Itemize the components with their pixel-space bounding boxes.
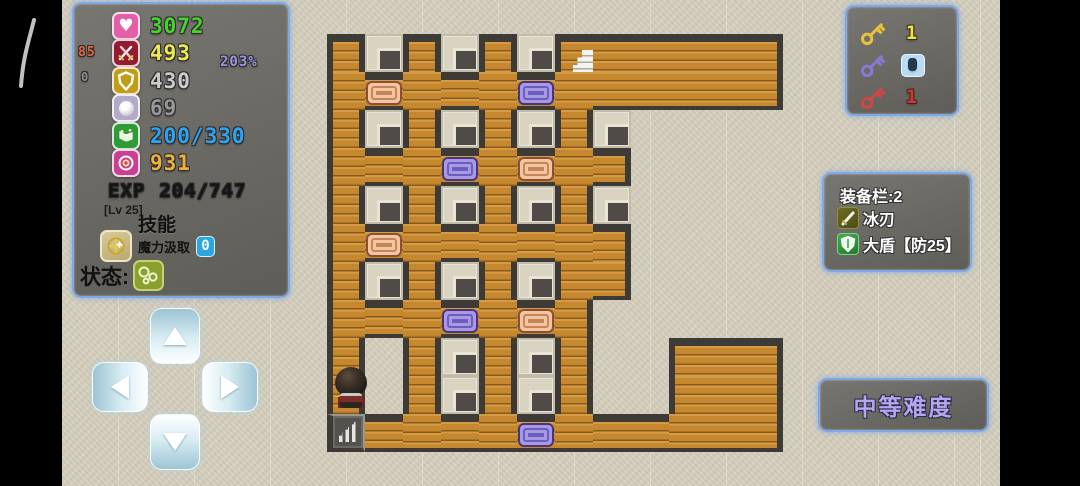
floor-tile [403,34,441,72]
wall-pillar [517,376,555,414]
wall-pillar [517,34,555,72]
wall-pillar [441,186,479,224]
left-arrow-icon [111,375,129,399]
red-key-count: 1 [901,86,923,108]
floor-tile [479,262,517,300]
equipment-item-label: 冰刃 [863,206,895,230]
dpad-down-button[interactable] [150,414,200,470]
floor-tile [441,72,479,110]
equipment-item: 大盾【防25】 [837,232,961,256]
skill-row: 魔力汲取 0 [100,230,215,262]
floor-tile [593,262,631,300]
floor-tile [365,414,403,452]
exp-line: EXP204/747 [108,180,246,202]
floor-tile [669,72,707,110]
floor-tile [707,338,745,376]
wall-pillar [441,110,479,148]
floor-tile [631,414,669,452]
purple-door[interactable] [517,414,555,452]
status-effect-icon [133,260,164,291]
floor-tile [327,224,365,262]
floor-tile [479,148,517,186]
floor-tile [707,376,745,414]
stat-row-defense: 430 [112,67,191,95]
gem-value: 69 [150,98,177,119]
left-bezel [0,0,62,486]
wall-pillar [365,110,403,148]
floor-tile [555,110,593,148]
floor-tile [745,338,783,376]
floor-tile [403,224,441,262]
floor-tile [403,338,441,376]
shield-icon [112,67,140,95]
floor-tile [555,224,593,262]
floor-tile [593,224,631,262]
equipment-item: 冰刃 [837,206,895,230]
heart-icon: ♥ [112,12,140,40]
floor-tile [479,376,517,414]
equipment-item-label: 大盾【防25】 [863,232,961,256]
key-row: 1 [859,82,923,112]
red-key-icon [859,83,887,111]
player-sprite[interactable] [334,367,368,413]
exp-value: 204/747 [159,180,246,202]
player-tile[interactable] [327,376,365,414]
floor-tile [707,34,745,72]
coin-icon [112,149,140,177]
mana-value: 200/330 [150,126,246,147]
defense-aux-value: 0 [81,70,89,84]
equipment-panel: 装备栏:2 冰刃 大盾【防25】 [822,172,972,272]
mana-drain-skill-icon[interactable] [100,230,132,262]
big-shield-icon [837,233,859,255]
bezel-curve-mark [0,0,62,486]
floor-tile [327,262,365,300]
floor-tile [555,300,593,338]
floor-tile [403,262,441,300]
orange-door[interactable] [365,224,403,262]
yellow-key-count: 1 [901,22,923,44]
floor-tile [707,414,745,452]
skill-count-badge: 0 [196,236,215,257]
floor-tile [555,414,593,452]
right-arrow-icon [221,375,239,399]
purple-door[interactable] [441,300,479,338]
floor-tile [555,262,593,300]
floor-tile [403,110,441,148]
wall-pillar [517,262,555,300]
purple-door[interactable] [517,72,555,110]
stat-row-gem: 69 [112,94,177,122]
dpad-up-button[interactable] [150,308,200,364]
floor-tile [555,148,593,186]
orange-door[interactable] [365,72,403,110]
floor-tile [555,338,593,376]
floor-tile [669,338,707,376]
stairs-up[interactable] [555,34,593,72]
floor-tile [555,376,593,414]
blue-key-icon [859,51,887,79]
floor-tile [327,300,365,338]
floor-tile [631,34,669,72]
wall-pillar [365,186,403,224]
floor-tile [403,148,441,186]
floor-tile [479,300,517,338]
floor-tile [403,72,441,110]
equipment-title: 装备栏:2 [840,183,902,207]
floor-tile [327,34,365,72]
floor-tile [403,414,441,452]
floor-tile [365,300,403,338]
orange-door[interactable] [517,148,555,186]
difficulty-label: 中等难度 [854,388,954,422]
attack-percent-value: 203% [220,54,258,70]
purple-door[interactable] [441,148,479,186]
floor-tile [403,186,441,224]
floor-tile [479,110,517,148]
floor-tile [745,34,783,72]
book-icon [112,122,140,150]
stat-row-hp: ♥ 3072 [112,12,205,40]
wall-pillar [593,186,631,224]
floor-tile [479,34,517,72]
status-label: 状态: [80,261,129,291]
stairs-down[interactable] [327,414,365,452]
orb-icon [112,94,140,122]
wall-pillar [441,376,479,414]
level-badge: [Lv 25] [104,203,143,217]
floor-tile [441,224,479,262]
exp-label: EXP [108,180,145,202]
wall-pillar [365,262,403,300]
down-arrow-icon [163,433,187,451]
difficulty-button[interactable]: 中等难度 [818,378,989,432]
floor-tile [555,72,593,110]
status-row: 状态: [80,260,164,291]
hud-panel: ♥ 3072 493 430 69 200/330 [72,2,290,298]
stat-row-mana: 200/330 [112,122,246,150]
right-bezel [1000,0,1080,486]
floor-tile [593,148,631,186]
floor-tile [479,338,517,376]
maze[interactable] [327,34,783,452]
keys-panel: 1 0 1 [845,5,959,116]
floor-tile [745,414,783,452]
game-screen: ♥ 3072 493 430 69 200/330 [0,0,1080,486]
floor-tile [327,186,365,224]
floor-tile [327,72,365,110]
wall-pillar [517,338,555,376]
gold-value: 931 [150,153,191,174]
floor-tile [669,376,707,414]
floor-tile [479,414,517,452]
attack-value: 493 [150,43,191,64]
floor-tile [631,72,669,110]
orange-door[interactable] [517,300,555,338]
stat-row-gold: 931 [112,149,191,177]
floor-tile [479,72,517,110]
wall-pillar [365,34,403,72]
key-row: 0 [859,50,925,80]
floor-tile [403,300,441,338]
dpad [84,300,264,476]
wall-pillar [441,34,479,72]
wall-pillar [441,338,479,376]
floor-tile [707,72,745,110]
wall-pillar [593,110,631,148]
floor-tile [555,186,593,224]
floor-tile [669,34,707,72]
floor-tile [745,376,783,414]
hp-value: 3072 [150,16,205,37]
floor-tile [593,414,631,452]
wall-pillar [441,262,479,300]
floor-tile [327,148,365,186]
attack-aux-value: 85 [78,45,96,60]
skill-label: 魔力汲取 [138,237,190,256]
floor-tile [403,376,441,414]
floor-tile [441,414,479,452]
up-arrow-icon [163,327,187,345]
wall-pillar [517,110,555,148]
floor-tile [479,224,517,262]
key-row: 1 [859,18,923,48]
ice-blade-icon [837,207,859,229]
floor-tile [327,110,365,148]
yellow-key-icon [859,19,887,47]
defense-value: 430 [150,71,191,92]
blue-key-count: 0 [901,54,925,77]
floor-tile [669,414,707,452]
dpad-left-button[interactable] [92,362,148,412]
dpad-right-button[interactable] [202,362,258,412]
floor-tile [593,34,631,72]
wall-pillar [517,186,555,224]
floor-tile [745,72,783,110]
stat-row-attack: 493 [112,39,191,67]
floor-tile [479,186,517,224]
floor-tile [517,224,555,262]
floor-tile [593,72,631,110]
swords-icon [112,39,140,67]
floor-tile [365,148,403,186]
